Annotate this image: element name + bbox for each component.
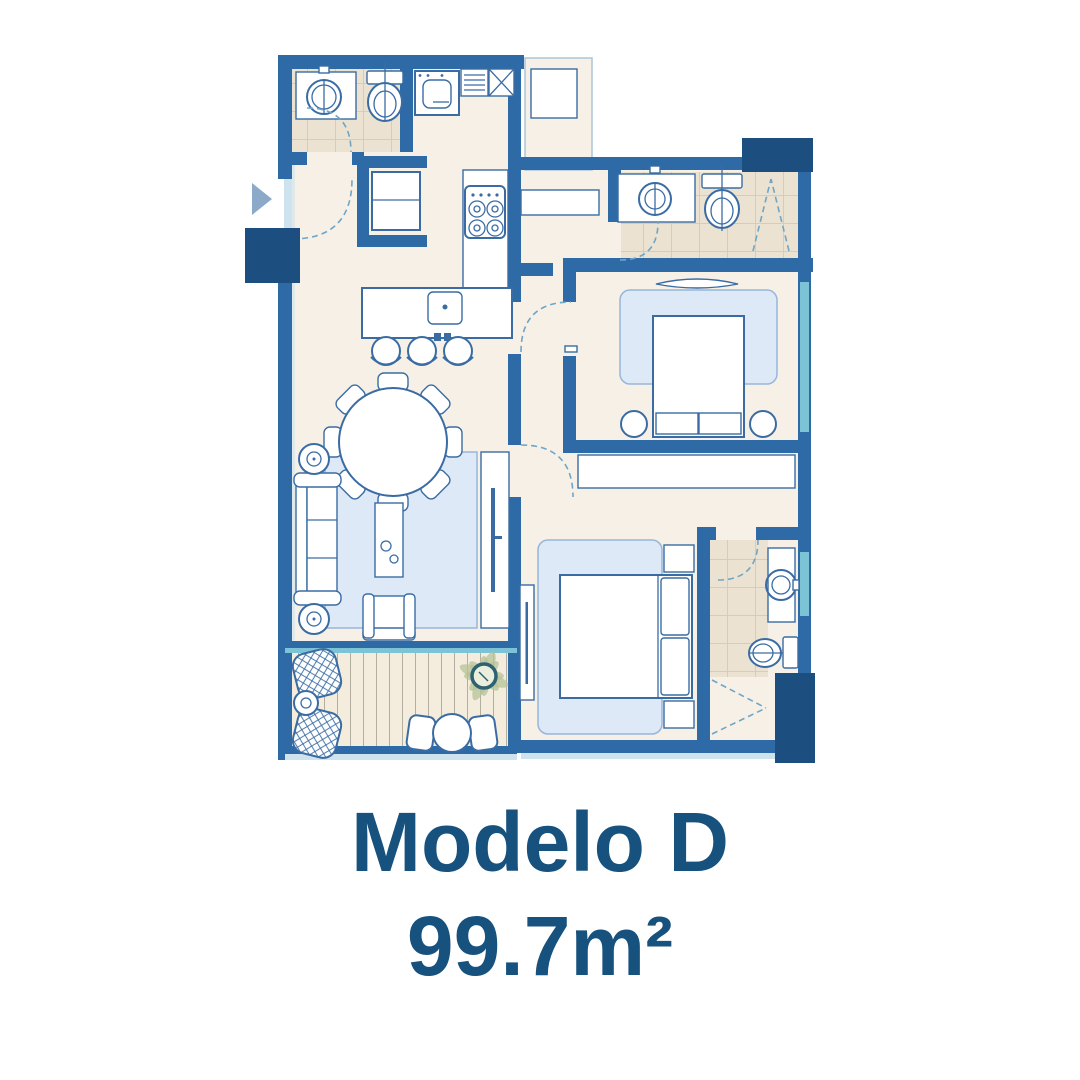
bed (653, 316, 744, 437)
pillow (699, 413, 741, 434)
bathroom1-counter (296, 72, 356, 119)
side-table-top (299, 444, 329, 474)
nightstand (664, 545, 694, 572)
toilet-icon (749, 637, 798, 668)
dresser (520, 585, 534, 700)
caption: Modelo D 99.7m² (0, 790, 1080, 998)
fridge-nook (372, 172, 420, 230)
bistro-set (406, 714, 498, 752)
door-leaf (565, 346, 577, 352)
balcony-side-table (294, 691, 318, 715)
pillow (661, 638, 689, 695)
sofa (294, 473, 341, 605)
bathroom3-window (800, 552, 809, 616)
stove-icon (465, 186, 505, 238)
laundry-sink-icon (461, 69, 514, 96)
pillow (661, 578, 689, 635)
nightstand (750, 411, 776, 437)
tv-console (481, 452, 509, 628)
model-area: 99.7m² (0, 894, 1080, 998)
nightstand (664, 701, 694, 728)
side-table-bottom (299, 604, 329, 634)
washer-icon (415, 71, 459, 115)
model-name: Modelo D (0, 790, 1080, 894)
armchair (363, 594, 415, 640)
bar-stools (371, 337, 473, 365)
bistro-table (433, 714, 471, 752)
toilet-icon (702, 166, 742, 231)
entrance-arrow-icon (252, 183, 272, 215)
pillow (656, 413, 698, 434)
bedroom2-window (800, 282, 809, 432)
toilet-icon (367, 62, 403, 121)
coffee-table (375, 503, 403, 577)
fridge-icon (372, 172, 420, 230)
bed (560, 575, 692, 698)
storage-room (525, 58, 592, 170)
nightstand (621, 411, 647, 437)
kitchen-counter-ext (521, 190, 599, 215)
dining-area (324, 373, 462, 511)
dining-table (339, 388, 447, 496)
hallway-wardrobe (578, 455, 795, 488)
floor-plan-page: Modelo D 99.7m² (0, 0, 1080, 1080)
kitchen-island (362, 288, 512, 341)
